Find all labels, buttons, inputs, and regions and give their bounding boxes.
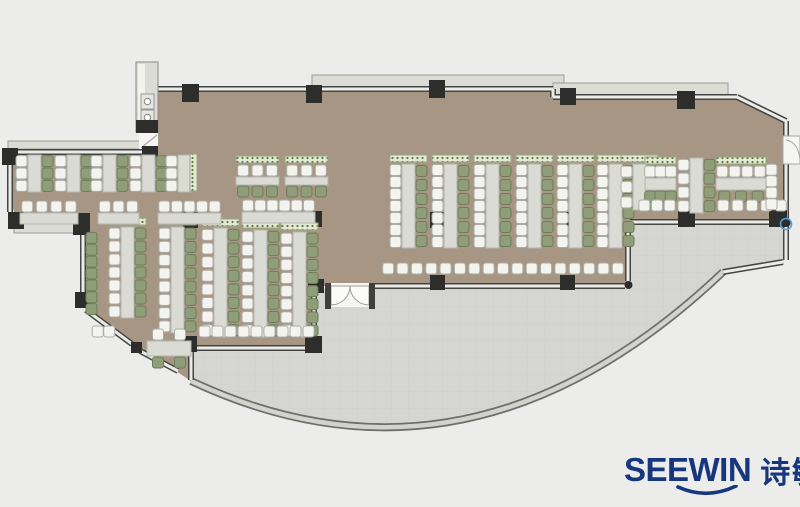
chair bbox=[390, 189, 401, 200]
planter bbox=[432, 155, 469, 162]
planter bbox=[285, 156, 328, 163]
chair bbox=[81, 168, 92, 179]
chair bbox=[171, 201, 182, 212]
chair bbox=[242, 245, 253, 256]
desk bbox=[242, 212, 315, 223]
chair bbox=[729, 166, 740, 177]
planter bbox=[645, 157, 676, 164]
chair bbox=[281, 299, 292, 310]
chair bbox=[516, 189, 527, 200]
chair bbox=[542, 222, 553, 233]
chair bbox=[228, 270, 239, 281]
chair bbox=[81, 180, 92, 191]
chair bbox=[416, 180, 427, 191]
chair bbox=[159, 228, 170, 239]
chair bbox=[86, 232, 97, 243]
chair bbox=[159, 241, 170, 252]
desk bbox=[236, 177, 279, 185]
chair bbox=[542, 194, 553, 205]
chair bbox=[202, 229, 213, 240]
desk bbox=[178, 155, 191, 192]
desk bbox=[528, 164, 541, 248]
chair bbox=[202, 297, 213, 308]
chair bbox=[623, 208, 634, 219]
chair bbox=[742, 166, 753, 177]
chair bbox=[747, 200, 758, 211]
chair bbox=[645, 166, 656, 177]
chair bbox=[86, 304, 97, 315]
chair bbox=[623, 236, 634, 247]
desk bbox=[402, 164, 415, 248]
chair bbox=[416, 222, 427, 233]
chair bbox=[542, 166, 553, 177]
chair bbox=[113, 201, 124, 212]
chair bbox=[55, 180, 66, 191]
chair bbox=[390, 165, 401, 176]
chair bbox=[287, 186, 298, 197]
desk bbox=[103, 155, 116, 192]
chair bbox=[307, 299, 318, 310]
chair bbox=[516, 225, 527, 236]
chair bbox=[109, 280, 120, 291]
chair bbox=[766, 176, 777, 187]
chair bbox=[458, 222, 469, 233]
chair bbox=[86, 244, 97, 255]
chair bbox=[281, 286, 292, 297]
chair bbox=[664, 200, 675, 211]
chair bbox=[597, 213, 608, 224]
chair bbox=[569, 263, 580, 274]
chair bbox=[516, 201, 527, 212]
chair bbox=[185, 268, 196, 279]
chair bbox=[185, 228, 196, 239]
chair bbox=[432, 189, 443, 200]
chair bbox=[153, 357, 164, 368]
chair bbox=[597, 225, 608, 236]
chair bbox=[42, 156, 53, 167]
chair bbox=[623, 222, 634, 233]
desk bbox=[147, 341, 191, 356]
chair bbox=[86, 268, 97, 279]
chair bbox=[109, 254, 120, 265]
chair bbox=[416, 166, 427, 177]
chair bbox=[228, 284, 239, 295]
chair bbox=[307, 233, 318, 244]
chair bbox=[42, 168, 53, 179]
desk bbox=[645, 178, 676, 190]
chair bbox=[156, 156, 167, 167]
chair bbox=[516, 177, 527, 188]
chair bbox=[99, 201, 110, 212]
chair bbox=[16, 168, 27, 179]
chair bbox=[117, 156, 128, 167]
chair bbox=[458, 194, 469, 205]
chair bbox=[130, 180, 141, 191]
chair bbox=[440, 263, 451, 274]
chair bbox=[209, 201, 220, 212]
chair bbox=[228, 311, 239, 322]
chair bbox=[281, 259, 292, 270]
chair bbox=[390, 225, 401, 236]
chair bbox=[159, 294, 170, 305]
chair bbox=[432, 165, 443, 176]
planter bbox=[281, 223, 318, 230]
chair bbox=[474, 189, 485, 200]
chair bbox=[621, 197, 632, 208]
chair bbox=[55, 156, 66, 167]
desk bbox=[121, 227, 134, 318]
chair bbox=[86, 256, 97, 267]
chair bbox=[704, 159, 715, 170]
desk bbox=[171, 227, 184, 333]
chair bbox=[557, 201, 568, 212]
chair bbox=[264, 326, 275, 337]
chair bbox=[542, 236, 553, 247]
fixture-icon bbox=[144, 98, 150, 104]
chair bbox=[583, 236, 594, 247]
chair bbox=[411, 263, 422, 274]
chair bbox=[166, 168, 177, 179]
chair bbox=[135, 280, 146, 291]
chair bbox=[159, 268, 170, 279]
chair bbox=[91, 168, 102, 179]
chair bbox=[242, 298, 253, 309]
chair bbox=[315, 165, 326, 176]
chair bbox=[156, 180, 167, 191]
chair bbox=[704, 187, 715, 198]
chair bbox=[228, 229, 239, 240]
chair bbox=[598, 263, 609, 274]
chair bbox=[109, 306, 120, 317]
planter bbox=[557, 155, 594, 162]
chair bbox=[135, 267, 146, 278]
chair bbox=[432, 213, 443, 224]
desk bbox=[444, 164, 457, 248]
chair bbox=[225, 326, 236, 337]
chair bbox=[732, 200, 743, 211]
chair bbox=[557, 225, 568, 236]
chair bbox=[704, 201, 715, 212]
chair bbox=[268, 298, 279, 309]
chair bbox=[238, 326, 249, 337]
chair bbox=[281, 312, 292, 323]
chair bbox=[266, 186, 277, 197]
desk bbox=[142, 155, 155, 192]
chair bbox=[516, 213, 527, 224]
chair bbox=[130, 156, 141, 167]
chair bbox=[597, 201, 608, 212]
chair bbox=[242, 311, 253, 322]
chair bbox=[458, 180, 469, 191]
chair bbox=[303, 326, 314, 337]
chair bbox=[42, 180, 53, 191]
floor-plan-canvas: SEEWIN 诗敏 bbox=[0, 0, 800, 507]
chair bbox=[474, 177, 485, 188]
chair bbox=[557, 237, 568, 248]
chair bbox=[185, 241, 196, 252]
chair bbox=[315, 186, 326, 197]
chair bbox=[583, 208, 594, 219]
desk bbox=[569, 164, 582, 248]
desk bbox=[20, 213, 78, 224]
chair bbox=[197, 201, 208, 212]
chair bbox=[153, 329, 164, 340]
chair bbox=[55, 168, 66, 179]
chair bbox=[474, 225, 485, 236]
chair bbox=[117, 168, 128, 179]
desk bbox=[98, 213, 139, 224]
chair bbox=[469, 263, 480, 274]
planter bbox=[190, 154, 197, 191]
chair bbox=[36, 201, 47, 212]
desk bbox=[609, 164, 622, 248]
chair bbox=[130, 168, 141, 179]
brand-wordmark: SEEWIN bbox=[624, 451, 751, 489]
brand-text-cn: 诗敏 bbox=[760, 448, 800, 492]
chair bbox=[185, 321, 196, 332]
chair bbox=[51, 201, 62, 212]
chair bbox=[678, 159, 689, 170]
chair bbox=[652, 200, 663, 211]
chair bbox=[268, 311, 279, 322]
fixture-icon bbox=[144, 114, 150, 120]
chair bbox=[584, 263, 595, 274]
chair bbox=[541, 263, 552, 274]
chair bbox=[199, 326, 210, 337]
chair bbox=[416, 208, 427, 219]
chair bbox=[766, 164, 777, 175]
chair bbox=[583, 180, 594, 191]
chair bbox=[390, 177, 401, 188]
chair bbox=[159, 308, 170, 319]
chair bbox=[251, 326, 262, 337]
chair bbox=[454, 263, 465, 274]
chair bbox=[498, 263, 509, 274]
chair bbox=[583, 222, 594, 233]
chair bbox=[290, 326, 301, 337]
chair bbox=[185, 308, 196, 319]
chair bbox=[175, 357, 186, 368]
chair bbox=[202, 270, 213, 281]
chair bbox=[279, 200, 290, 211]
chair bbox=[228, 243, 239, 254]
desk bbox=[214, 228, 227, 337]
chair bbox=[202, 284, 213, 295]
chair bbox=[307, 286, 318, 297]
chair bbox=[109, 241, 120, 252]
chair bbox=[238, 165, 249, 176]
chair bbox=[104, 326, 115, 337]
chair bbox=[135, 293, 146, 304]
chair bbox=[474, 201, 485, 212]
chair bbox=[291, 200, 302, 211]
chair bbox=[228, 257, 239, 268]
brand-logo: SEEWIN 诗敏 bbox=[624, 448, 800, 492]
planter bbox=[390, 155, 427, 162]
chair bbox=[432, 201, 443, 212]
chair bbox=[135, 306, 146, 317]
chair bbox=[500, 236, 511, 247]
chair bbox=[266, 165, 277, 176]
chair bbox=[135, 254, 146, 265]
planter bbox=[716, 157, 766, 164]
chair bbox=[228, 297, 239, 308]
chair bbox=[542, 208, 553, 219]
chair bbox=[397, 263, 408, 274]
chair bbox=[267, 200, 278, 211]
chair bbox=[500, 222, 511, 233]
chair bbox=[268, 258, 279, 269]
chair bbox=[301, 165, 312, 176]
chair bbox=[718, 200, 729, 211]
chair bbox=[483, 263, 494, 274]
chair bbox=[512, 263, 523, 274]
desk bbox=[716, 178, 766, 190]
chair bbox=[109, 228, 120, 239]
chair bbox=[597, 177, 608, 188]
chair bbox=[655, 166, 666, 177]
chair bbox=[500, 180, 511, 191]
chair bbox=[500, 166, 511, 177]
side-door bbox=[783, 136, 800, 164]
chair bbox=[426, 263, 437, 274]
chair bbox=[202, 311, 213, 322]
chair bbox=[583, 194, 594, 205]
chair bbox=[159, 281, 170, 292]
chair bbox=[303, 200, 314, 211]
chair bbox=[458, 208, 469, 219]
chair bbox=[597, 237, 608, 248]
chair bbox=[432, 237, 443, 248]
chair bbox=[500, 194, 511, 205]
chair bbox=[557, 189, 568, 200]
chair bbox=[135, 228, 146, 239]
chair bbox=[583, 166, 594, 177]
desk bbox=[486, 164, 499, 248]
chair bbox=[16, 156, 27, 167]
chair bbox=[416, 236, 427, 247]
desk bbox=[293, 232, 306, 337]
chair bbox=[281, 246, 292, 257]
chair bbox=[238, 186, 249, 197]
chair bbox=[185, 281, 196, 292]
chair bbox=[678, 187, 689, 198]
chair bbox=[184, 201, 195, 212]
chair bbox=[307, 272, 318, 283]
chair bbox=[557, 177, 568, 188]
chair bbox=[474, 213, 485, 224]
chair bbox=[127, 201, 138, 212]
desk bbox=[254, 230, 267, 337]
chair bbox=[202, 243, 213, 254]
chair bbox=[166, 156, 177, 167]
chair bbox=[135, 241, 146, 252]
chair bbox=[390, 213, 401, 224]
chair bbox=[665, 166, 676, 177]
chair bbox=[109, 293, 120, 304]
desk bbox=[158, 213, 221, 224]
chair bbox=[159, 255, 170, 266]
planter bbox=[516, 155, 553, 162]
chair bbox=[268, 285, 279, 296]
chair bbox=[252, 165, 263, 176]
chair bbox=[639, 200, 650, 211]
chair bbox=[281, 233, 292, 244]
chair bbox=[175, 329, 186, 340]
chair bbox=[458, 236, 469, 247]
chair bbox=[597, 189, 608, 200]
chair bbox=[81, 156, 92, 167]
planter bbox=[236, 156, 279, 163]
chair bbox=[91, 180, 102, 191]
chair bbox=[22, 201, 33, 212]
chair bbox=[678, 173, 689, 184]
chair bbox=[557, 165, 568, 176]
chair bbox=[383, 263, 394, 274]
chair bbox=[268, 271, 279, 282]
chair bbox=[432, 177, 443, 188]
chair bbox=[621, 166, 632, 177]
chair bbox=[416, 194, 427, 205]
brand-text: SEEWIN bbox=[624, 451, 751, 488]
chair bbox=[242, 231, 253, 242]
chair bbox=[717, 166, 728, 177]
desk bbox=[67, 155, 80, 192]
chair bbox=[307, 312, 318, 323]
chair bbox=[86, 280, 97, 291]
chair bbox=[166, 180, 177, 191]
chair bbox=[301, 186, 312, 197]
chair bbox=[307, 259, 318, 270]
chair bbox=[202, 257, 213, 268]
chair bbox=[516, 165, 527, 176]
chair bbox=[255, 200, 266, 211]
chair bbox=[65, 201, 76, 212]
chair bbox=[516, 237, 527, 248]
chair bbox=[621, 182, 632, 193]
chair bbox=[92, 326, 103, 337]
terrace-double-door bbox=[325, 283, 375, 309]
chair bbox=[287, 165, 298, 176]
chair bbox=[268, 231, 279, 242]
chair bbox=[281, 272, 292, 283]
chair bbox=[500, 208, 511, 219]
chair bbox=[91, 156, 102, 167]
chair bbox=[390, 201, 401, 212]
chair bbox=[474, 165, 485, 176]
brand-swoosh-icon bbox=[676, 485, 738, 496]
chair bbox=[474, 237, 485, 248]
chair bbox=[612, 263, 623, 274]
chair bbox=[156, 168, 167, 179]
desk bbox=[690, 158, 703, 213]
chair bbox=[557, 213, 568, 224]
chair bbox=[86, 292, 97, 303]
chair bbox=[16, 180, 27, 191]
core-module bbox=[136, 62, 158, 149]
chair bbox=[243, 200, 254, 211]
chair bbox=[432, 225, 443, 236]
chair bbox=[766, 187, 777, 198]
desk bbox=[285, 177, 328, 185]
chair bbox=[117, 180, 128, 191]
chair bbox=[704, 173, 715, 184]
desk bbox=[28, 155, 41, 192]
chair bbox=[185, 294, 196, 305]
chair bbox=[555, 263, 566, 274]
chair bbox=[185, 255, 196, 266]
chair bbox=[242, 285, 253, 296]
